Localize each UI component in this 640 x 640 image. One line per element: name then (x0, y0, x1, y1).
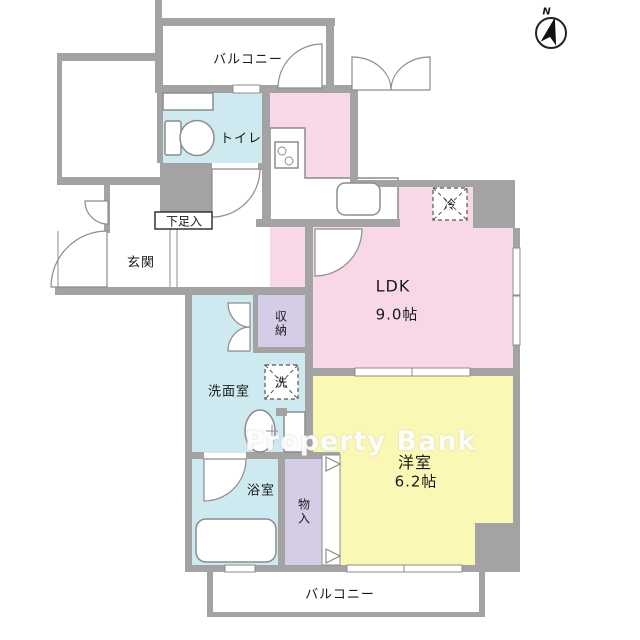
toilet-tank (165, 121, 181, 155)
bathtub (196, 519, 276, 562)
pipe-shaft (160, 163, 212, 212)
label-entrance: 玄関 (127, 252, 155, 271)
door-toilet (212, 169, 260, 217)
label-storage: 収納 (273, 310, 290, 338)
closet-sliding-door (322, 455, 340, 565)
kitchen-sink (337, 183, 380, 215)
label-ldk-size: 9.0帖 (376, 304, 419, 325)
label-shoe-box: 下足入 (166, 213, 202, 230)
label-balcony-top: バルコニー (213, 49, 283, 68)
window-ldk-right-1 (513, 248, 520, 295)
label-washroom: 洗面室 (208, 381, 250, 400)
window-ldk-right-2 (513, 296, 520, 345)
room-western-c (340, 523, 475, 565)
floor-plan: バルコニー トイレ LDK 9.0帖 玄関 下足入 収納 洗面室 洗 冷 浴室 … (0, 0, 640, 640)
floor-plan-drawing (0, 0, 640, 640)
label-western-size: 6.2帖 (395, 471, 438, 492)
compass-north-label: N (542, 7, 551, 18)
toilet-bowl (180, 121, 214, 156)
label-toilet: トイレ (220, 128, 262, 147)
door-ldk-top-left-leaf (352, 57, 391, 90)
door-entrance (51, 231, 107, 287)
window-bathroom-balcony (225, 565, 255, 572)
label-washer: 洗 (275, 374, 287, 391)
label-balcony-bottom: バルコニー (305, 584, 375, 603)
label-fridge: 冷 (444, 196, 456, 213)
label-western-room: 洋室 (398, 449, 432, 473)
label-closet: 物入 (296, 498, 313, 526)
window-toilet-balcony (233, 85, 260, 93)
toilet-shelf (163, 93, 213, 110)
compass (536, 16, 566, 48)
vanity-counter (284, 412, 305, 452)
label-bathroom: 浴室 (247, 480, 275, 499)
label-ldk: LDK (376, 277, 411, 296)
door-balcony-top (278, 44, 322, 88)
room-western-a (313, 376, 513, 455)
door-meter-box (85, 201, 108, 224)
door-ldk-top-right-leaf (391, 57, 430, 90)
